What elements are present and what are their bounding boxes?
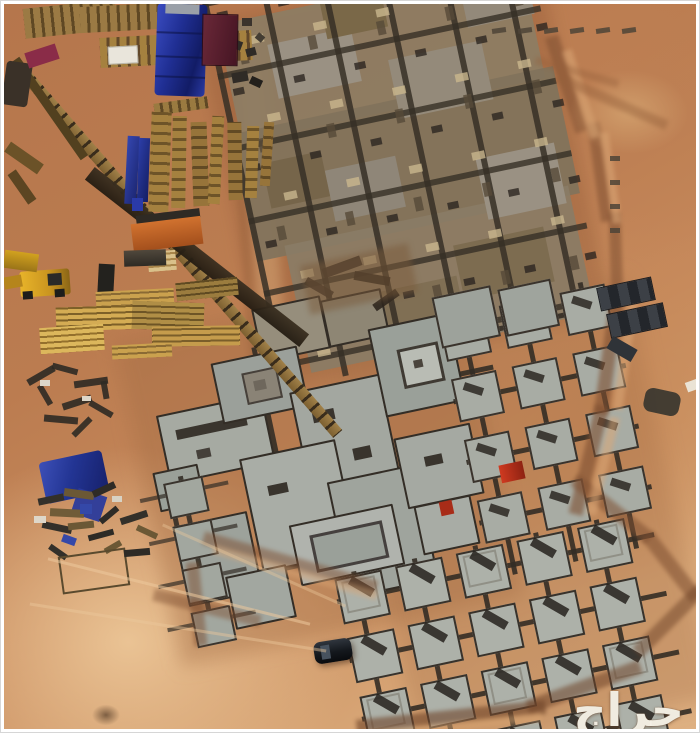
tarp-rope bbox=[157, 31, 207, 35]
pad-footing bbox=[524, 418, 578, 471]
white-bit bbox=[112, 496, 122, 502]
blue-tarp-vertical bbox=[137, 138, 150, 202]
debris-dash bbox=[610, 228, 620, 233]
timber-stack bbox=[39, 324, 105, 354]
shoring-tower bbox=[191, 122, 210, 207]
pad-footing bbox=[512, 357, 566, 410]
debris-dash bbox=[610, 156, 620, 161]
loader-cab bbox=[47, 273, 62, 286]
screenshot-frame: حراج bbox=[0, 0, 700, 733]
maroon-container bbox=[202, 14, 239, 67]
dark-machine bbox=[124, 249, 167, 266]
shoring-tower bbox=[227, 122, 242, 200]
slab-small bbox=[497, 279, 560, 337]
rebar-clutter bbox=[277, 4, 289, 7]
watermark-haraj: حراج bbox=[573, 687, 684, 729]
blue-bit bbox=[80, 504, 92, 514]
pad-footing bbox=[395, 557, 452, 612]
debris bbox=[352, 445, 372, 460]
pad-footing bbox=[529, 590, 586, 645]
truck-cab bbox=[165, 4, 199, 15]
pad-footing bbox=[163, 476, 210, 520]
white-bit bbox=[40, 380, 50, 386]
pad-footing bbox=[589, 577, 646, 632]
slab-small bbox=[431, 285, 501, 348]
tarped-truck bbox=[154, 4, 207, 97]
shoring-tower bbox=[148, 112, 171, 213]
blue-box bbox=[132, 198, 143, 211]
debris bbox=[242, 18, 252, 26]
pad-footing bbox=[516, 531, 573, 586]
debris bbox=[267, 482, 289, 496]
red-box-small bbox=[439, 500, 455, 516]
tarp-rope bbox=[155, 75, 205, 79]
ground-smudge bbox=[86, 700, 126, 729]
white-bit bbox=[82, 396, 91, 401]
debris-dash bbox=[610, 204, 620, 209]
white-bit bbox=[34, 516, 46, 523]
debris bbox=[196, 448, 212, 460]
pad-footing bbox=[468, 602, 525, 657]
aerial-photo-construction-site: حراج bbox=[4, 4, 696, 729]
pad-footing bbox=[451, 370, 505, 423]
debris-dash bbox=[610, 180, 620, 185]
loader-wheel bbox=[54, 289, 65, 298]
pad-footing bbox=[347, 628, 404, 683]
scene-layer bbox=[4, 4, 696, 729]
pad-footing bbox=[408, 615, 465, 670]
shoring-tower bbox=[245, 126, 260, 198]
tarp-rope bbox=[156, 55, 206, 59]
white-crate bbox=[108, 45, 139, 65]
debris bbox=[424, 453, 444, 467]
shoring-tower bbox=[171, 116, 187, 208]
wheel-loader bbox=[19, 268, 71, 297]
loader-wheel bbox=[23, 291, 34, 300]
